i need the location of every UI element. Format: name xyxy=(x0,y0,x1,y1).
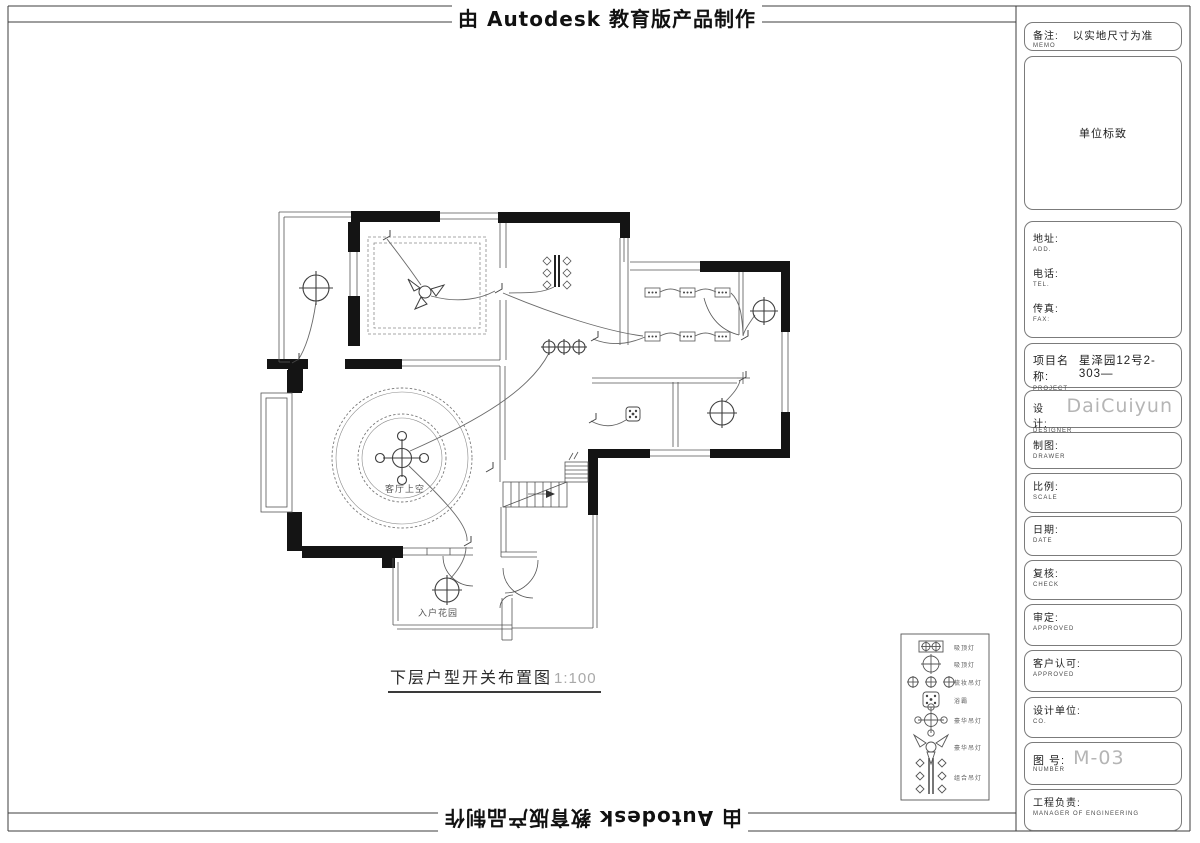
titleblock-project: 项目名称: 星泽园12号2-303— PROJECT xyxy=(1024,343,1182,388)
check-label-en: CHECK xyxy=(1033,582,1173,588)
memo-label: 备注: xyxy=(1033,27,1059,42)
titleblock-contact: 地址: ADD. 电话: TEL. 传真: FAX: xyxy=(1024,221,1182,338)
memo-label-en: MEMO xyxy=(1033,43,1173,49)
legend-label: 组合吊灯 xyxy=(954,773,982,782)
date-label: 日期: xyxy=(1033,521,1173,536)
manager-label-en: MANAGER OF ENGINEERING xyxy=(1033,811,1173,817)
fax-label-en: FAX: xyxy=(1033,317,1173,323)
client-label: 客户认可: xyxy=(1033,655,1173,670)
tel-label: 电话: xyxy=(1033,265,1173,280)
drawer-label-en: DRAWER xyxy=(1033,454,1173,460)
memo-value: 以实地尺寸为准 xyxy=(1073,28,1154,43)
titleblock-scale: 比例: SCALE xyxy=(1024,473,1182,513)
approve-label-en: APPROVED xyxy=(1033,626,1173,632)
project-label: 项目名称: xyxy=(1033,352,1077,384)
titleblock-drawer: 制图: DRAWER xyxy=(1024,432,1182,469)
legend-label: 豪华吊灯 xyxy=(954,716,982,725)
titleblock-approve: 审定: APPROVED xyxy=(1024,604,1182,646)
four-head-chandelier-icon xyxy=(376,432,429,485)
floor-plan-canvas xyxy=(0,0,1200,843)
company-label: 设计单位: xyxy=(1033,702,1173,717)
number-value: M-03 xyxy=(1073,747,1124,769)
sheet-frame xyxy=(8,6,1190,831)
legend-label: 浴霸 xyxy=(954,696,968,705)
legend-label: 吸顶灯 xyxy=(954,660,975,669)
project-value: 星泽园12号2-303— xyxy=(1079,352,1173,380)
entry-lamp-icon xyxy=(432,575,462,605)
titleblock-check: 复核: CHECK xyxy=(1024,560,1182,600)
designer-value: DaiCuiyun xyxy=(1067,395,1173,417)
date-label-en: DATE xyxy=(1033,538,1173,544)
number-label: 图 号: xyxy=(1033,752,1065,768)
tel-label-en: TEL. xyxy=(1033,282,1173,288)
logo-placeholder: 单位标致 xyxy=(1079,125,1127,141)
plan-title-block: 下层户型开关布置图 1:100 xyxy=(388,664,601,693)
titleblock-manager: 工程负责: MANAGER OF ENGINEERING xyxy=(1024,789,1182,831)
company-label-en: CO. xyxy=(1033,719,1173,725)
drawer-label: 制图: xyxy=(1033,437,1173,452)
legend-label: 豪华吊灯 xyxy=(954,743,982,752)
titleblock-memo: 备注: 以实地尺寸为准 MEMO xyxy=(1024,22,1182,51)
balcony-lamp-icon xyxy=(299,271,333,305)
legend-label: 梳妆吊灯 xyxy=(954,678,982,687)
titleblock-number: 图 号: M-03 NUMBER xyxy=(1024,742,1182,785)
switch-wires xyxy=(298,239,755,579)
bar-chandelier-icon xyxy=(543,255,571,289)
fax-label: 传真: xyxy=(1033,300,1173,315)
titleblock-date: 日期: DATE xyxy=(1024,516,1182,556)
edu-banner-top: 由 Autodesk 教育版产品制作 xyxy=(452,3,762,32)
bath-heater-icon xyxy=(626,407,640,421)
addr-label: 地址: xyxy=(1033,230,1173,245)
scale-label: 比例: xyxy=(1033,478,1173,493)
titleblock-company: 设计单位: CO. xyxy=(1024,697,1182,738)
walls xyxy=(267,211,790,568)
titleblock-client: 客户认可: APPROVED xyxy=(1024,650,1182,692)
three-head-chandelier-icon xyxy=(408,279,444,309)
plan-title: 下层户型开关布置图 xyxy=(390,664,552,688)
titleblock-designer: 设计: DaiCuiyun DESIGNER xyxy=(1024,390,1182,428)
cad-sheet: 由 Autodesk 教育版产品制作 由 Autodesk 教育版产品制作 下层… xyxy=(0,0,1200,843)
downlight-boxes xyxy=(645,288,730,341)
addr-label-en: ADD. xyxy=(1033,247,1173,253)
room-label-living-void: 客厅上空 xyxy=(385,482,425,495)
scale-label-en: SCALE xyxy=(1033,495,1173,501)
designer-label: 设计: xyxy=(1033,400,1051,430)
room-label-entry-garden: 入户花园 xyxy=(418,606,458,619)
ceiling-dashed-detail xyxy=(368,237,486,334)
triple-switch-group-icon xyxy=(541,339,587,355)
check-label: 复核: xyxy=(1033,565,1173,580)
legend-label: 吸顶灯 xyxy=(954,643,975,652)
approve-label: 审定: xyxy=(1033,609,1173,624)
edu-banner-bottom: 由 Autodesk 教育版产品制作 xyxy=(438,805,748,834)
right-room-lamp-icon xyxy=(750,297,778,325)
client-label-en: APPROVED xyxy=(1033,672,1173,678)
manager-label: 工程负责: xyxy=(1033,794,1173,809)
lower-right-lamp-icon xyxy=(707,398,737,428)
plan-scale: 1:100 xyxy=(554,670,597,687)
titleblock-logo: 单位标致 xyxy=(1024,56,1182,210)
stairs xyxy=(503,452,588,507)
